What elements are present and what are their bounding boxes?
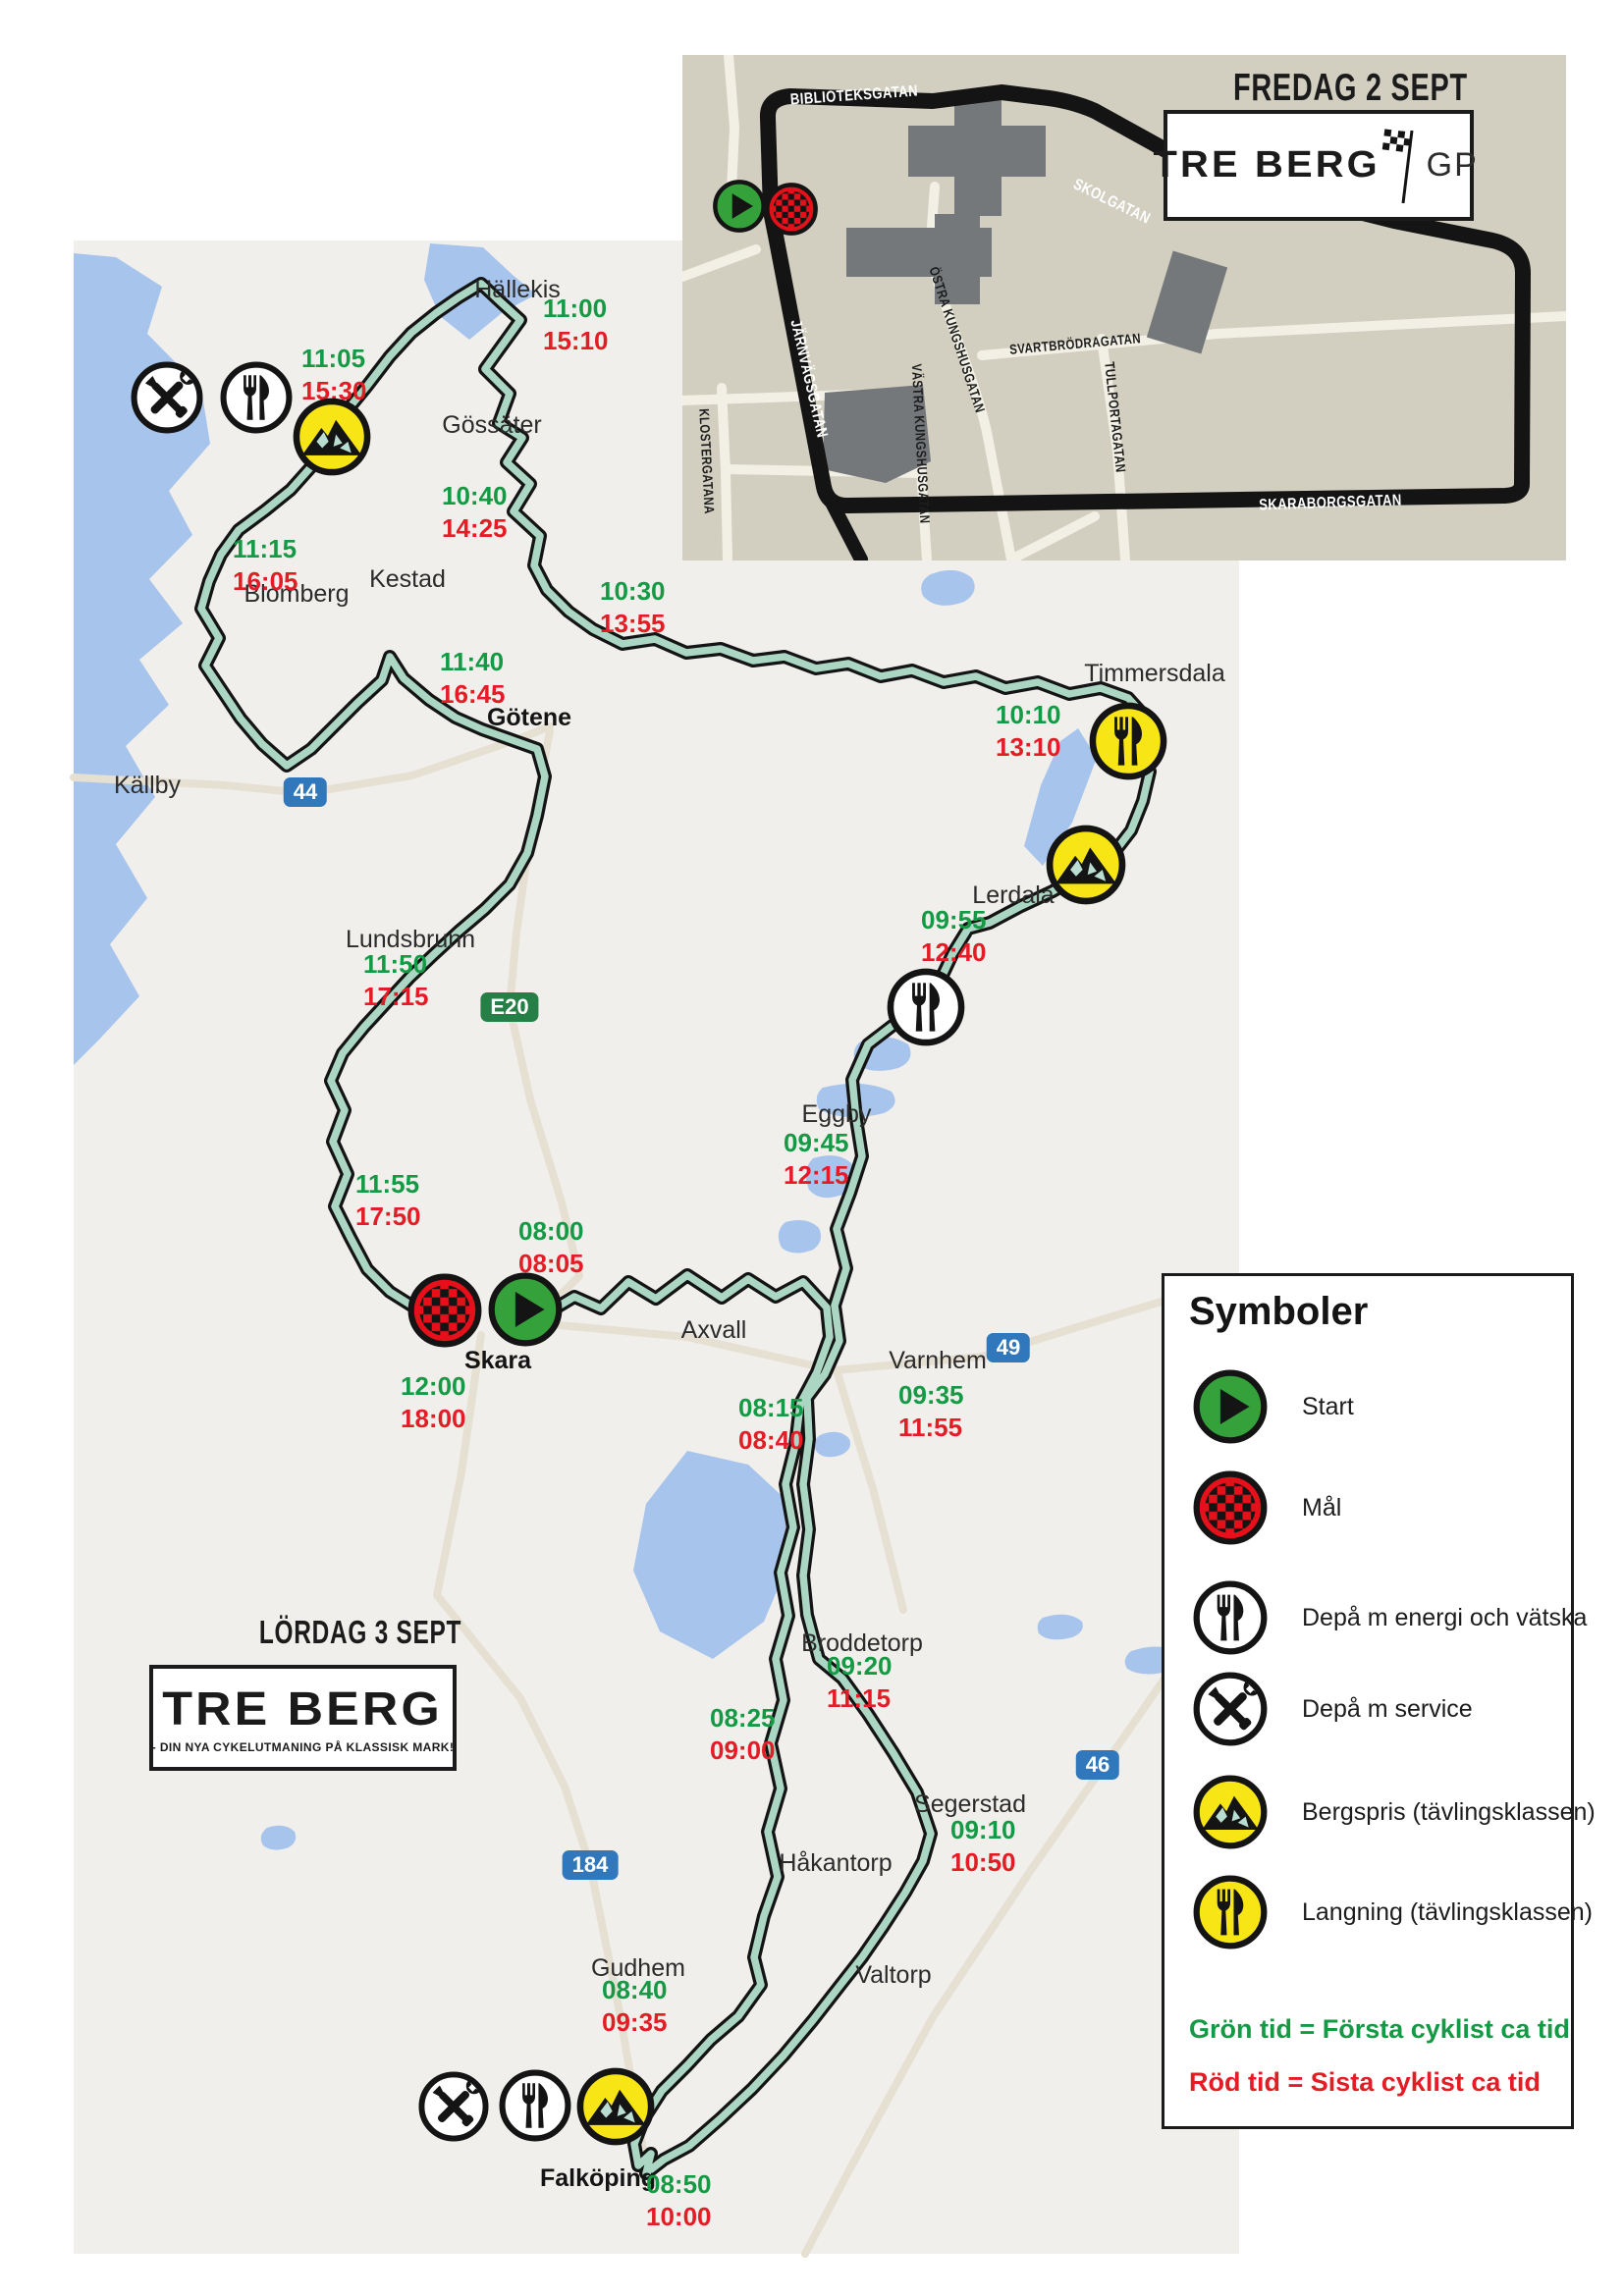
langning-icon (1088, 701, 1168, 781)
time-label-axvall: 08:1508:40 (738, 1392, 804, 1457)
saturday-title: LÖRDAG 3 SEPT (224, 1614, 498, 1651)
time-label-west-broddetorp: 08:2509:00 (710, 1702, 776, 1767)
time-label-gotene: 11:4016:45 (440, 646, 506, 711)
time-label-gudhem: 08:4009:35 (602, 1974, 668, 2039)
time-label-broddetorp: 09:2011:15 (827, 1650, 893, 1715)
bergspris-icon (292, 397, 372, 477)
time-label-falkoping: 08:5010:00 (646, 2168, 712, 2233)
time-label-lundsbrunn: 11:5017:15 (363, 948, 429, 1013)
road-badge-e20: E20 (480, 992, 538, 1022)
friday-title: FREDAG 2 SEPT (1151, 67, 1468, 110)
road-badge-46: 46 (1076, 1750, 1119, 1780)
food-depot-icon (886, 967, 966, 1047)
legend-note-green: Grön tid = Första cyklist ca tid (1189, 2014, 1570, 2045)
service-depot-icon (130, 360, 204, 435)
place-label-skara: Skara (464, 1347, 531, 1375)
food-depot-icon (498, 2068, 572, 2143)
bergspris-icon (575, 2066, 656, 2147)
legend-item-depa-service: Depå m service (1192, 1671, 1473, 1747)
logo-wordmark: TRE BERG (1154, 144, 1380, 187)
tre-berg-logo: TRE BERG - DIN NYA CYKELUTMANING PÅ KLAS… (149, 1665, 457, 1771)
legend-item-langning: Langning (tävlingsklassen) (1192, 1874, 1593, 1950)
start-icon (712, 179, 767, 234)
langning-icon (1192, 1874, 1269, 1950)
place-label-hakantorp: Håkantorp (779, 1849, 892, 1878)
legend-item-mal: Mål (1192, 1469, 1341, 1546)
legend-item-start: Start (1192, 1368, 1354, 1445)
time-label-hallekis: 11:0015:10 (543, 293, 609, 357)
time-label-gossater: 10:4014:25 (442, 480, 508, 545)
time-label-varnhem: 09:3511:55 (898, 1379, 964, 1444)
place-label-varnhem: Varnhem (889, 1347, 987, 1375)
mal-icon (764, 182, 819, 237)
service-depot-icon (1192, 1671, 1269, 1747)
place-label-axvall: Axvall (681, 1316, 747, 1345)
food-depot-icon (1192, 1579, 1269, 1656)
road-badge-49: 49 (987, 1333, 1030, 1362)
time-label-south-lundsbrunn: 11:5517:50 (355, 1168, 421, 1233)
place-label-kestad: Kestad (369, 565, 446, 594)
service-depot-icon (417, 2070, 490, 2143)
logo-wordmark: TRE BERG (163, 1682, 444, 1736)
mal-icon (406, 1272, 483, 1349)
place-label-timmersdala: Timmersdala (1084, 660, 1225, 688)
legend-note-red: Röd tid = Sista cyklist ca tid (1189, 2067, 1541, 2098)
road-badge-184: 184 (563, 1850, 619, 1880)
checkered-flag-icon (1381, 125, 1421, 207)
time-label-lerdala: 09:5512:40 (921, 904, 987, 969)
time-label-kestad-east: 10:3013:55 (600, 575, 666, 640)
place-label-kallby: Källby (114, 772, 181, 800)
logo-gp-suffix: GP (1427, 146, 1479, 185)
place-label-eggby: Eggby (802, 1100, 872, 1129)
inset-city-map: BIBLIOTEKSGATAN SKOLGATAN JÄRNVÄGSGATAN … (682, 55, 1566, 561)
tre-berg-gp-logo: TRE BERG GP (1164, 110, 1474, 221)
place-label-gossater: Gössäter (442, 411, 541, 440)
time-label-segerstad: 09:1010:50 (950, 1814, 1016, 1879)
mal-icon (1192, 1469, 1269, 1546)
food-depot-icon (219, 360, 294, 435)
logo-tagline: - DIN NYA CYKELUTMANING PÅ KLASSISK MARK… (152, 1740, 455, 1754)
start-icon (487, 1271, 564, 1348)
place-label-valtorp: Valtorp (855, 1961, 931, 1990)
time-label-mal: 12:0018:00 (401, 1370, 466, 1435)
route-poster: 44 E20 49 46 184 Hällekis Gössäter Kesta… (0, 0, 1624, 2296)
legend-title: Symboler (1189, 1290, 1368, 1334)
road-badge-44: 44 (284, 777, 327, 807)
bergspris-icon (1045, 824, 1127, 906)
time-label-timmersdala: 10:1013:10 (996, 699, 1061, 764)
bergspris-icon (1192, 1774, 1269, 1850)
time-label-eggby: 09:4512:15 (784, 1127, 849, 1192)
start-icon (1192, 1368, 1269, 1445)
legend-item-depa-energi: Depå m energi och vätska (1192, 1579, 1587, 1656)
legend-item-bergspris: Bergspris (tävlingsklassen) (1192, 1774, 1596, 1850)
legend-panel: Symboler Start Mål Depå m energi och vät… (1162, 1273, 1574, 2129)
time-label-blomberg: 11:1516:05 (233, 533, 298, 598)
place-label-falkoping: Falköping (540, 2164, 656, 2193)
